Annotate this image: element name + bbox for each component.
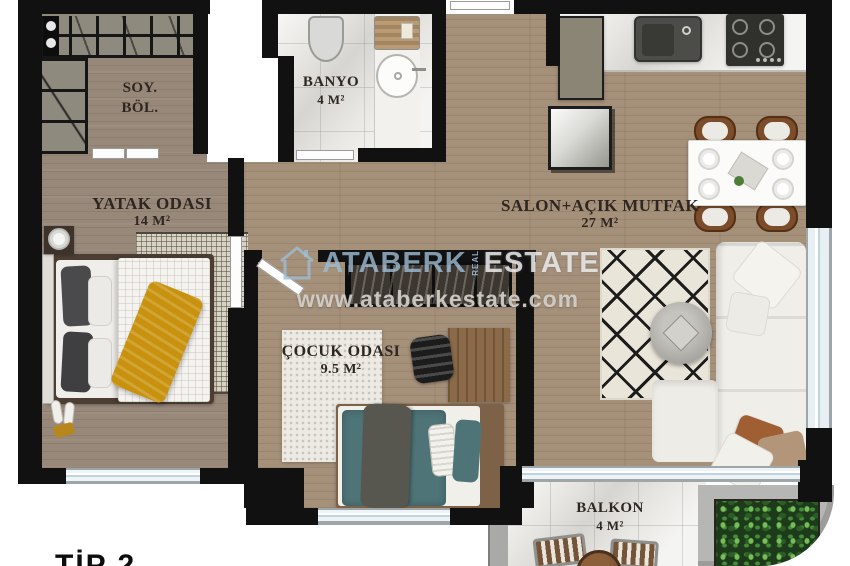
bed-headboard	[42, 254, 54, 404]
wall-outer-right-upper	[806, 0, 832, 228]
label-dressing: SOY. BÖL.	[88, 78, 192, 118]
dressing-door-right	[126, 148, 159, 159]
wall-top-dressing	[18, 0, 210, 14]
wall-kitchen-divider	[546, 14, 560, 66]
wall-bathroom-bottom	[358, 148, 446, 162]
chair-cushion	[764, 208, 790, 226]
kitchen-sink-unit	[634, 16, 702, 62]
wall-bathroom-right	[432, 14, 446, 162]
plate-1	[698, 148, 720, 170]
fixture-basin-top	[46, 21, 56, 31]
wall-kids-top-right	[318, 250, 536, 262]
kids-desk	[448, 328, 510, 402]
sink	[376, 54, 418, 98]
plan-type-label: TİP 2	[55, 549, 136, 566]
burner-3	[732, 42, 748, 58]
living-kitchen-name: SALON+AÇIK MUTFAK	[480, 196, 720, 216]
dressing-fixture	[43, 16, 59, 56]
towel	[401, 23, 413, 39]
wall-corner-block	[246, 468, 304, 525]
kids-wardrobe	[345, 262, 512, 307]
wall-top-right	[514, 0, 808, 14]
label-kids-room: ÇOCUK ODASI 9.5 M²	[261, 342, 421, 378]
burner-2	[759, 19, 775, 35]
bedroom-area: 14 M²	[72, 214, 232, 230]
bathroom-door	[296, 150, 354, 160]
balcony-area: 4 M²	[560, 518, 660, 534]
tall-cabinet	[558, 16, 604, 100]
core-notch-upper	[208, 0, 262, 58]
wall-balcony-door-left	[500, 466, 522, 510]
wall-bathroom-top	[276, 0, 446, 14]
bedroom-door	[230, 236, 242, 308]
kids-window	[318, 508, 450, 525]
plate-4	[772, 178, 794, 200]
burner-1	[732, 19, 748, 35]
chair-cushion	[702, 122, 728, 140]
toilet	[308, 16, 344, 62]
sink-drain	[394, 72, 402, 80]
wall-kids-bottom-right	[448, 508, 522, 525]
dressing-name-line1: SOY.	[88, 78, 192, 98]
living-kitchen-area: 27 M²	[480, 216, 720, 232]
vanity-shelf	[374, 16, 420, 50]
fixture-basin-bottom	[46, 38, 56, 48]
chair-cushion	[764, 122, 790, 140]
kitchen-faucet	[682, 26, 691, 35]
bathroom-area: 4 M²	[286, 92, 376, 108]
entry-mirror-cabinet	[548, 106, 612, 170]
label-living-kitchen: SALON+AÇIK MUTFAK 27 M²	[480, 196, 720, 232]
sofa-chaise	[652, 380, 718, 462]
label-bathroom: BANYO 4 M²	[286, 72, 376, 108]
bed-pillow-white-2	[88, 338, 112, 388]
sink-bowl	[642, 24, 674, 56]
dining-chair-4	[756, 202, 798, 232]
living-window	[806, 228, 832, 428]
stove-knobs	[756, 58, 760, 62]
table-plant	[734, 176, 744, 186]
stove	[726, 14, 784, 66]
wall-bedroom-bottom-right	[198, 468, 248, 484]
bedroom-window	[66, 468, 200, 484]
sofa-pillow-white-mid	[725, 291, 771, 337]
balcony-name: BALKON	[560, 498, 660, 518]
dressing-name-line2: BÖL.	[88, 98, 192, 118]
wall-balcony-corner-right	[798, 460, 832, 502]
balcony-sliding-door	[522, 466, 800, 482]
balcony-rail-left	[488, 525, 508, 566]
entry-door	[450, 1, 510, 10]
wardrobe-side	[42, 58, 88, 154]
wardrobe-rail	[42, 16, 193, 58]
kids-room-name: ÇOCUK ODASI	[261, 342, 421, 362]
floor-plan: SOY. BÖL. BANYO 4 M² YATAK ODASI 14 M² S…	[0, 0, 850, 566]
planter-greenery	[714, 499, 820, 566]
burner-4	[759, 42, 775, 58]
sink-faucet	[412, 68, 426, 71]
bed-pillow-white-1	[88, 276, 112, 326]
plate-2	[772, 148, 794, 170]
wall-dressing-right	[193, 14, 208, 154]
dressing-door-left	[92, 148, 125, 159]
kids-room-area: 9.5 M²	[261, 362, 421, 378]
core-notch-lower	[207, 58, 278, 162]
wall-outer-left	[18, 0, 42, 484]
table-lamp	[48, 228, 70, 250]
bedroom-name: YATAK ODASI	[72, 194, 232, 214]
bathroom-name: BANYO	[286, 72, 376, 92]
wall-bedroom-bottom-left	[18, 468, 68, 484]
kids-pillow-teal	[452, 419, 482, 483]
label-bedroom: YATAK ODASI 14 M²	[72, 194, 232, 230]
label-balcony: BALKON 4 M²	[560, 498, 660, 534]
kids-blanket-gray	[360, 403, 412, 509]
wall-bedroom-right-lower	[228, 308, 244, 468]
